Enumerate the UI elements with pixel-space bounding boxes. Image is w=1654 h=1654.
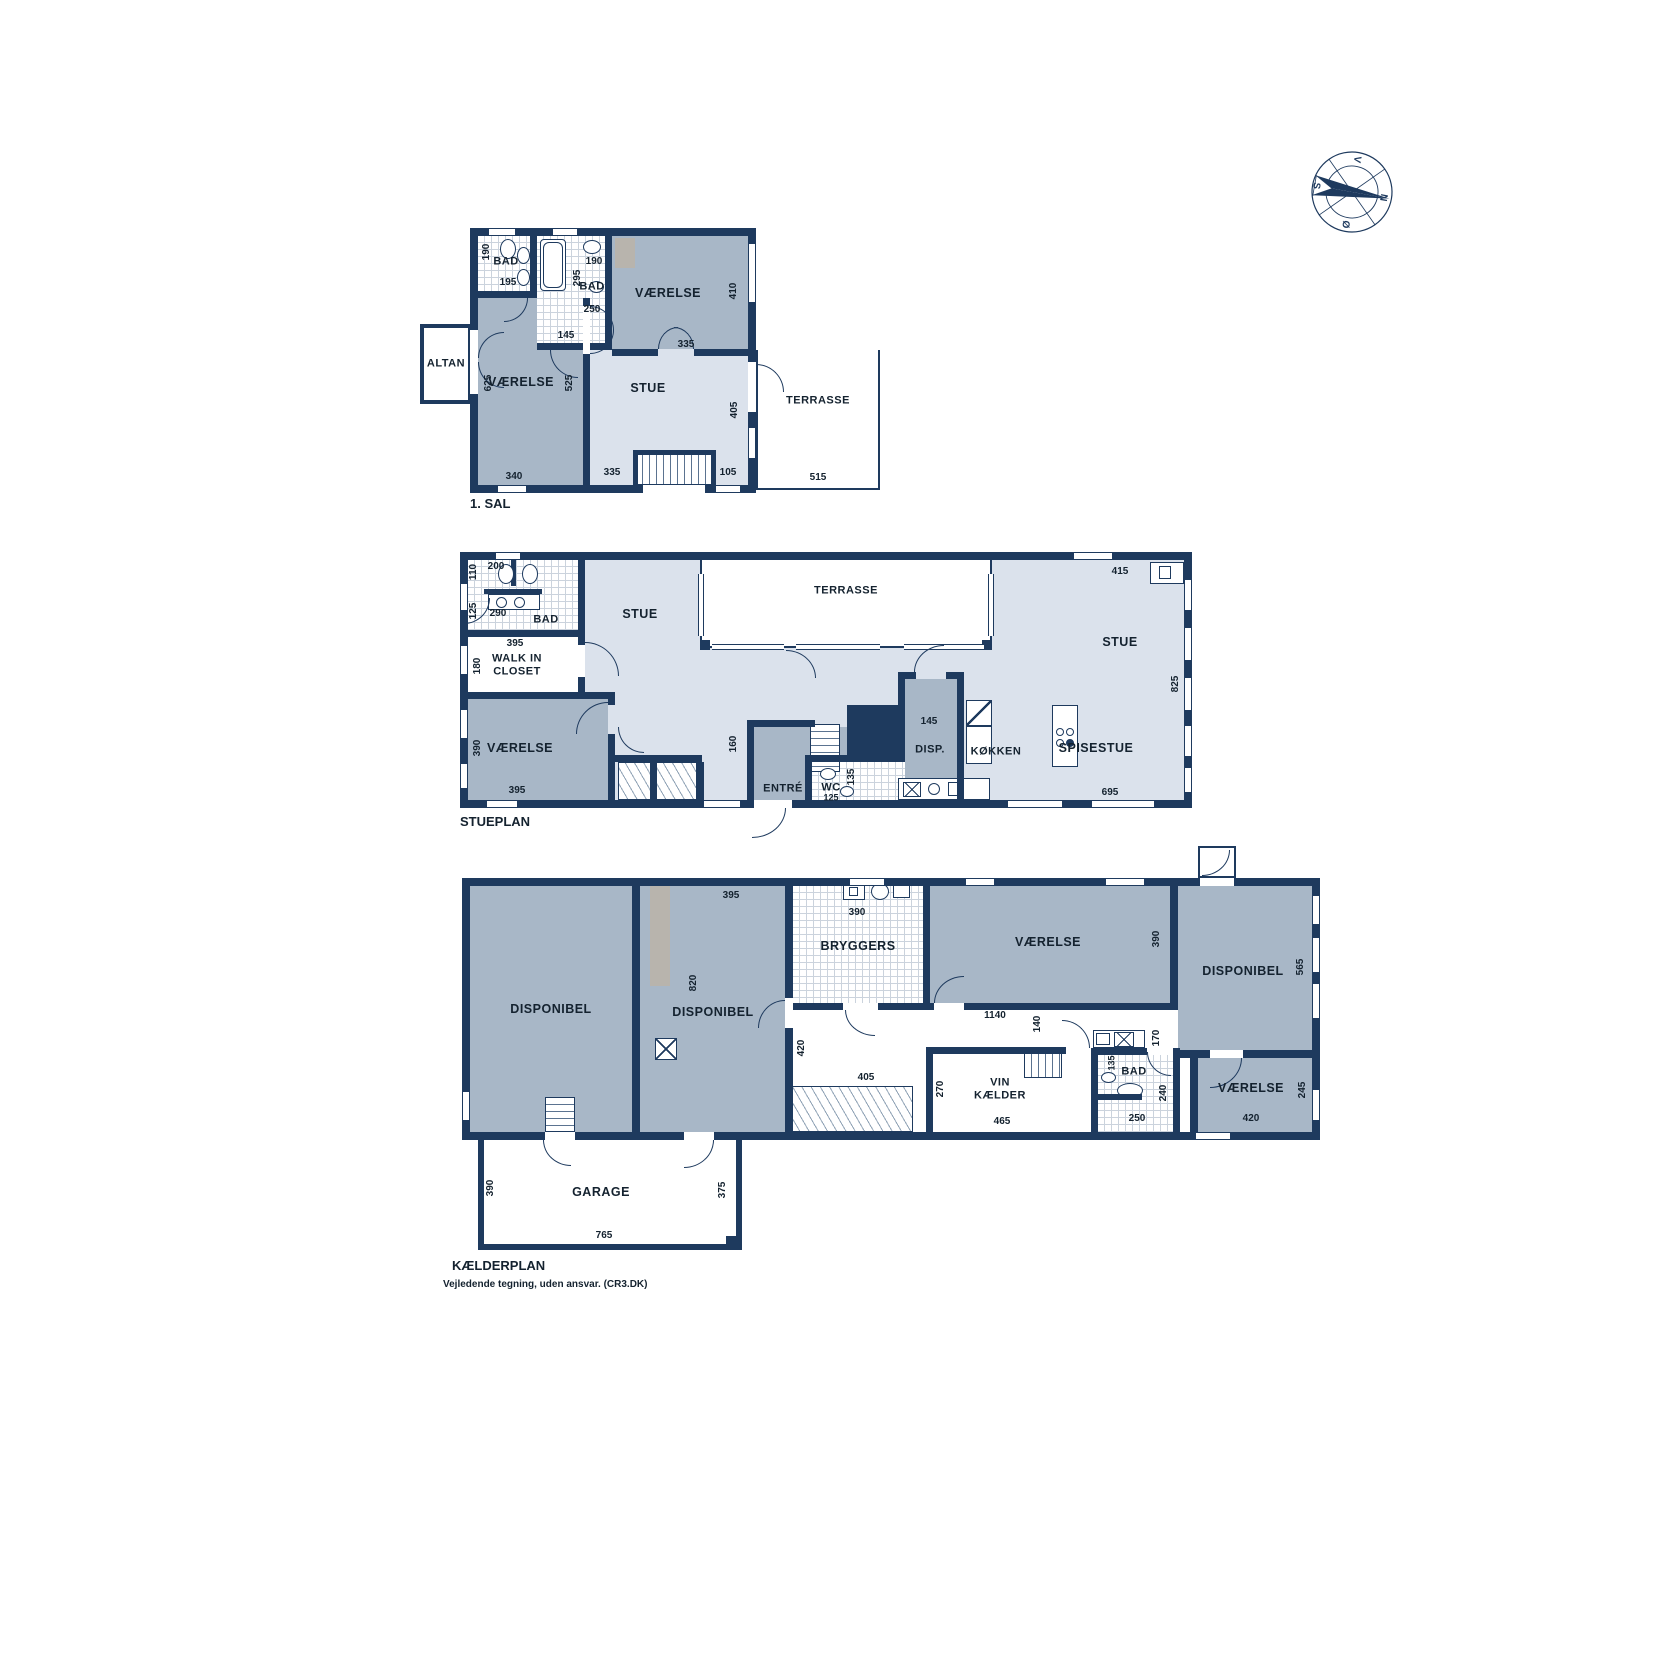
wall	[462, 878, 1320, 886]
dim-295: 295	[573, 270, 583, 287]
room-label-vaerelse: VÆRELSE	[1218, 1082, 1284, 1095]
stairs	[656, 762, 697, 800]
dim-465: 465	[994, 1117, 1011, 1127]
window	[460, 646, 468, 674]
fan-icon	[1114, 1032, 1134, 1047]
wall	[1243, 1050, 1320, 1058]
room-label-entre: ENTRÉ	[763, 784, 803, 795]
dim-395: 395	[507, 639, 524, 649]
shaft-block	[847, 705, 905, 762]
door-arc	[752, 808, 786, 838]
room-label-walkin-1: WALK IN	[492, 654, 542, 665]
dim-195: 195	[500, 278, 517, 288]
terrasse-post	[700, 640, 710, 650]
room-label-vaerelse: VÆRELSE	[635, 287, 701, 300]
closet-box	[650, 886, 670, 986]
closet-box	[615, 238, 635, 268]
wall	[633, 450, 638, 485]
room-label-vaerelse: VÆRELSE	[488, 376, 554, 389]
window	[850, 878, 884, 886]
room-label-bad: BAD	[1121, 1067, 1146, 1078]
window	[1312, 896, 1320, 924]
wall	[923, 886, 930, 1010]
dim-110: 110	[469, 564, 479, 580]
toilet-icon	[840, 786, 854, 797]
wall	[1091, 1048, 1147, 1055]
dim-625: 625	[484, 375, 494, 392]
wall	[1098, 1094, 1142, 1100]
wall	[736, 1133, 742, 1243]
window	[1184, 726, 1192, 756]
door-arc	[1062, 1020, 1090, 1048]
wall	[747, 720, 754, 808]
sink-icon	[496, 597, 507, 608]
room-label-bad: BAD	[533, 615, 558, 626]
dim-565: 565	[1296, 959, 1306, 976]
wall	[805, 755, 812, 800]
wall	[747, 720, 815, 727]
window	[460, 710, 468, 738]
window	[1196, 1132, 1230, 1140]
sink-icon	[903, 782, 921, 797]
window	[460, 764, 468, 788]
toilet-icon	[583, 240, 601, 254]
glass-door	[698, 574, 704, 636]
wall	[460, 630, 585, 637]
wall	[612, 349, 658, 356]
room-label-bryggers: BRYGGERS	[820, 940, 895, 953]
wall	[1178, 1050, 1210, 1058]
room-label-stue: STUE	[622, 608, 657, 621]
cooktop-icon	[1066, 728, 1074, 736]
window	[1074, 552, 1112, 560]
dim-340: 340	[506, 472, 523, 482]
dim-820: 820	[689, 975, 699, 992]
wall	[608, 734, 615, 800]
room-label-garage: GARAGE	[572, 1186, 630, 1199]
dim-145: 145	[921, 717, 938, 727]
toilet-icon	[1101, 1072, 1116, 1083]
floor-title-sal1: 1. SAL	[470, 497, 510, 510]
window	[966, 878, 994, 886]
dim-250: 250	[584, 305, 601, 315]
room-label-stue: STUE	[630, 382, 665, 395]
window	[1184, 678, 1192, 710]
dim-525: 525	[565, 375, 575, 392]
wall	[462, 1132, 1320, 1140]
wall	[478, 1244, 736, 1250]
wall	[1173, 1048, 1180, 1132]
dim-825: 825	[1171, 676, 1181, 693]
wall	[926, 1047, 1066, 1054]
window	[748, 428, 756, 458]
room-label-disponibel: DISPONIBEL	[672, 1006, 753, 1019]
wall	[805, 755, 905, 762]
stairs	[790, 1086, 913, 1132]
wall	[530, 236, 537, 298]
dim-405: 405	[730, 402, 740, 419]
dim-240: 240	[1159, 1085, 1169, 1102]
wall	[878, 1003, 923, 1010]
wall	[633, 450, 716, 455]
sink-icon	[517, 269, 530, 286]
window	[1312, 1090, 1320, 1120]
railing	[796, 644, 880, 650]
dim-140: 140	[1033, 1016, 1043, 1033]
window	[716, 485, 740, 493]
wall	[460, 692, 615, 699]
window	[1312, 938, 1320, 972]
room-label-disponibel: DISPONIBEL	[510, 1003, 591, 1016]
wall	[615, 755, 702, 762]
dim-145: 145	[558, 331, 575, 341]
wall	[1170, 878, 1178, 1010]
room-label-bad: BAD	[493, 257, 518, 268]
wall	[930, 1003, 934, 1010]
stair-opening	[643, 485, 705, 493]
dim-335: 335	[604, 468, 621, 478]
room-label-disp: DISP.	[915, 745, 945, 756]
window	[1184, 580, 1192, 610]
dim-160: 160	[729, 736, 739, 753]
wall	[697, 762, 704, 800]
dim-125: 125	[823, 794, 838, 803]
dim-180: 180	[473, 658, 483, 675]
dim-375: 375	[718, 1182, 728, 1199]
dim-335: 335	[678, 340, 695, 350]
stairs	[618, 762, 651, 800]
room-label-vaerelse: VÆRELSE	[1015, 936, 1081, 949]
dim-390: 390	[486, 1180, 496, 1197]
bathtub-inner	[543, 242, 563, 288]
dim-245: 245	[1298, 1082, 1308, 1099]
wall	[926, 1047, 933, 1132]
stairs	[810, 724, 840, 772]
dim-390: 390	[849, 908, 866, 918]
dim-170: 170	[1152, 1030, 1162, 1047]
dim-135: 135	[1108, 1055, 1117, 1070]
stairs	[635, 452, 713, 485]
door-opening	[470, 330, 478, 394]
window	[553, 228, 577, 236]
floor-title-kaelderplan: KÆLDERPLAN	[452, 1259, 545, 1272]
room-label-disponibel: DISPONIBEL	[1202, 965, 1283, 978]
door-opening	[748, 362, 756, 412]
dim-420: 420	[797, 1040, 807, 1057]
room-label-kokken: KØKKEN	[971, 747, 1022, 758]
fireplace-inner	[1159, 566, 1171, 579]
wall	[478, 1133, 484, 1248]
dim-410: 410	[729, 283, 739, 300]
room-label-bad: BAD	[579, 282, 604, 293]
room-label-terrasse: TERRASSE	[814, 586, 878, 597]
door-arc	[543, 1140, 571, 1166]
dim-415: 415	[1112, 567, 1129, 577]
dim-105: 105	[720, 468, 737, 478]
window	[1184, 768, 1192, 792]
floorplan-canvas: N Ø S V	[0, 0, 1654, 1654]
door-opening	[578, 645, 585, 677]
room-label-vinkaelder-1: VIN	[990, 1078, 1010, 1089]
stueplan-terrasse-deck	[700, 560, 992, 648]
railing	[712, 644, 784, 650]
wall	[726, 1236, 742, 1250]
dim-390: 390	[1152, 931, 1162, 948]
dim-395: 395	[509, 786, 526, 796]
room-label-vinkaelder-2: KÆLDER	[974, 1091, 1026, 1102]
wall	[964, 1003, 1177, 1010]
window	[496, 552, 520, 560]
window	[1106, 878, 1144, 886]
dim-395: 395	[723, 891, 740, 901]
room-label-walkin-2: CLOSET	[493, 667, 541, 678]
faucet-icon	[928, 783, 940, 795]
door-opening	[545, 1132, 575, 1140]
door-arc	[845, 1010, 875, 1036]
wall	[957, 672, 964, 808]
door-opening	[684, 1132, 714, 1140]
railing	[904, 644, 984, 650]
wall	[711, 450, 716, 485]
wall	[632, 886, 640, 1132]
dim-390: 390	[473, 740, 483, 757]
dim-405: 405	[858, 1073, 875, 1083]
window	[1092, 800, 1154, 808]
wall	[478, 291, 537, 298]
window	[1312, 984, 1320, 1018]
kitchen-island	[1052, 705, 1078, 767]
dim-695: 695	[1102, 788, 1119, 798]
dim-250: 250	[1129, 1114, 1146, 1124]
door-arc	[684, 1140, 714, 1168]
laundry-sink-inner	[849, 887, 858, 896]
dim-270: 270	[936, 1081, 946, 1098]
dim-1140: 1140	[984, 1011, 1006, 1021]
sink-icon	[514, 597, 525, 608]
window	[462, 1092, 470, 1120]
room-label-vaerelse: VÆRELSE	[487, 742, 553, 755]
wall	[694, 349, 748, 356]
dim-420: 420	[1243, 1114, 1260, 1124]
wall	[793, 1003, 843, 1010]
dim-125: 125	[469, 603, 479, 620]
room-label-stue-right: STUE	[1102, 636, 1137, 649]
floor-title-stueplan: STUEPLAN	[460, 815, 530, 828]
window	[704, 800, 740, 808]
window	[1184, 628, 1192, 660]
fridge-icon	[966, 700, 992, 726]
window	[498, 485, 526, 493]
wall	[1190, 1058, 1198, 1132]
dim-135: 135	[847, 769, 857, 786]
wall	[578, 560, 585, 699]
stairs	[1024, 1052, 1062, 1078]
dim-765: 765	[596, 1231, 613, 1241]
toilet-icon	[820, 768, 836, 780]
wall	[898, 672, 916, 679]
sink-icon	[1096, 1033, 1110, 1045]
dim-200: 200	[488, 562, 505, 572]
sink-icon	[517, 247, 530, 264]
door-opening	[754, 800, 792, 808]
dim-515: 515	[810, 473, 827, 483]
stairs	[545, 1097, 575, 1132]
disclaimer-text: Vejledende tegning, uden ansvar. (CR3.DK…	[443, 1280, 648, 1290]
window	[1008, 800, 1062, 808]
window	[748, 244, 756, 302]
wall	[651, 762, 656, 800]
door-opening	[1200, 878, 1234, 886]
dim-290: 290	[490, 609, 507, 619]
wall	[608, 699, 615, 705]
door-opening	[785, 998, 793, 1028]
dim-190: 190	[586, 257, 603, 267]
wall	[1091, 1048, 1098, 1132]
room-label-spisestue: SPISESTUE	[1059, 742, 1134, 755]
dim-190: 190	[482, 244, 492, 261]
window	[487, 800, 517, 808]
fan-icon	[655, 1038, 677, 1060]
glass-door	[988, 574, 994, 636]
compass-rose-icon: N Ø S V	[1302, 142, 1402, 242]
window	[489, 228, 515, 236]
room-label-terrasse: TERRASSE	[786, 396, 850, 407]
cooktop-icon	[1056, 728, 1064, 736]
toilet-icon	[522, 564, 538, 584]
room-label-altan: ALTAN	[427, 359, 465, 370]
